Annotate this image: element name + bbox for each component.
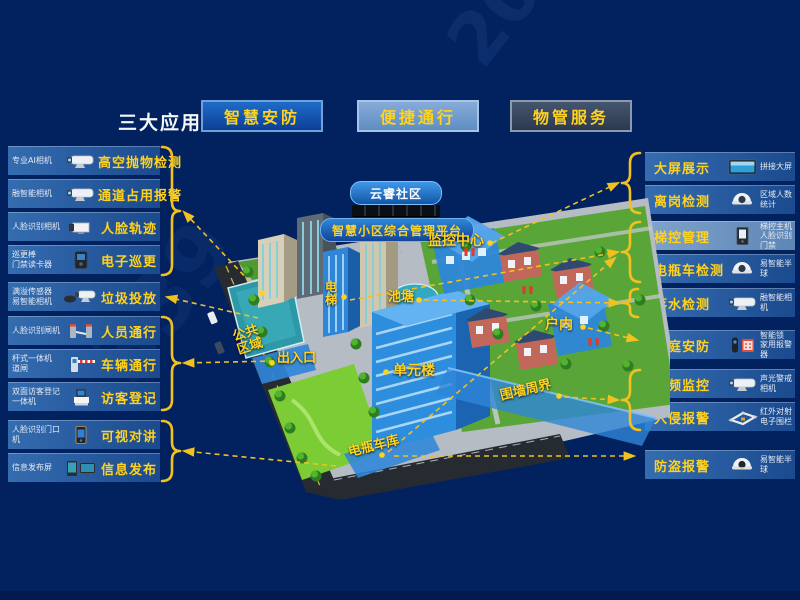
device-label: 专业AI相机 bbox=[8, 156, 62, 166]
feature-label: 访客登记 bbox=[98, 388, 160, 407]
device-label: 杆式一体机 道闸 bbox=[8, 354, 62, 373]
device-label: 智能锁 家用报警器 bbox=[760, 331, 795, 360]
feature-row-info-publishing: 信息发布屏 信息发布 bbox=[8, 453, 160, 482]
app-button-property[interactable]: 物管服务 bbox=[510, 100, 632, 132]
cloud-community-badge: 云睿社区 bbox=[350, 181, 442, 205]
bullet-camera-icon bbox=[724, 293, 760, 313]
barrier-gate-icon bbox=[62, 354, 98, 374]
feature-label: 车辆通行 bbox=[98, 355, 160, 374]
zone-label-entrance: 出入口 bbox=[277, 352, 316, 366]
app-button-security[interactable]: 智慧安防 bbox=[201, 100, 323, 132]
feature-row-channel-occupancy: 融智能相机 通道占用报警 bbox=[8, 179, 160, 208]
turnstile-icon bbox=[62, 321, 98, 341]
device-label: 满溢传感器 易智能相机 bbox=[8, 287, 62, 306]
feature-label: 电子巡更 bbox=[98, 251, 160, 270]
device-label: 人脸识别相机 bbox=[8, 222, 62, 232]
device-label: 声光警戒相机 bbox=[760, 374, 795, 393]
visitor-kiosk-icon bbox=[62, 387, 98, 407]
device-label: 易智能半球 bbox=[760, 259, 795, 278]
device-label: 红外对射 电子围栏 bbox=[760, 407, 795, 426]
page-title: 三大应用 bbox=[118, 108, 202, 135]
device-label: 信息发布屏 bbox=[8, 463, 62, 473]
info-screen-icon bbox=[62, 458, 98, 478]
feature-label: 可视对讲 bbox=[98, 426, 160, 445]
device-label: 拼接大屏 bbox=[760, 162, 795, 172]
smart-lock-siren-icon bbox=[724, 335, 760, 355]
watermark: 2020-09 bbox=[430, 0, 700, 82]
elevator-controller-icon bbox=[724, 226, 760, 246]
zone-label-monitoring-center: 监控中心 bbox=[428, 234, 484, 249]
bullet-camera-icon bbox=[724, 374, 760, 394]
dome-camera-icon bbox=[724, 259, 760, 279]
device-label: 区域人数统计 bbox=[760, 190, 795, 209]
device-label: 人脸识别门口机 bbox=[8, 425, 62, 444]
app-button-passage[interactable]: 便捷通行 bbox=[357, 100, 479, 132]
feature-row-face-track: 人脸识别相机 人脸轨迹 bbox=[8, 212, 160, 241]
feature-label: 高空抛物检测 bbox=[98, 152, 182, 171]
video-wall-icon bbox=[724, 157, 760, 177]
feature-row-vehicle-passage: 杆式一体机 道闸 车辆通行 bbox=[8, 349, 160, 378]
feature-row-video-intercom: 人脸识别门口机 可视对讲 bbox=[8, 420, 160, 449]
bullet-camera-icon bbox=[62, 151, 98, 171]
feature-row-electronic-patrol: 巡更棒 门禁读卡器 电子巡更 bbox=[8, 245, 160, 274]
feature-label: 大屏展示 bbox=[645, 158, 724, 177]
footer-strip bbox=[0, 591, 800, 600]
zone-label-unit-building: 单元楼 bbox=[393, 364, 435, 379]
bullet-camera-icon bbox=[62, 184, 98, 204]
device-label: 易智能半球 bbox=[760, 455, 795, 474]
feature-row-big-screen: 大屏展示 拼接大屏 bbox=[645, 152, 795, 181]
feature-label: 信息发布 bbox=[98, 459, 160, 478]
feature-row-high-altitude-throwing: 专业AI相机 高空抛物检测 bbox=[8, 146, 160, 175]
zone-label-pond: 池塘 bbox=[388, 291, 414, 305]
fence-icon bbox=[724, 407, 760, 427]
device-label: 双面访客登记 一体机 bbox=[8, 387, 62, 406]
door-intercom-icon bbox=[62, 425, 98, 445]
feature-label: 人员通行 bbox=[98, 322, 160, 341]
device-label: 梯控主机 人脸识别门禁 bbox=[760, 222, 795, 251]
feature-row-personnel-passage: 人脸识别闸机 人员通行 bbox=[8, 316, 160, 345]
feature-label: 人脸轨迹 bbox=[98, 218, 160, 237]
zone-label-indoor: 户内 bbox=[545, 318, 573, 333]
device-label: 人脸识别闸机 bbox=[8, 326, 62, 336]
zone-label-elevator: 电梯 bbox=[325, 281, 339, 307]
overflow-sensor-camera-icon bbox=[62, 287, 98, 307]
feature-row-visitor-registration: 双面访客登记 一体机 访客登记 bbox=[8, 382, 160, 411]
box-camera-icon bbox=[62, 217, 98, 237]
device-label: 融智能相机 bbox=[760, 293, 795, 312]
dome-camera-icon bbox=[724, 190, 760, 210]
feature-label: 垃圾投放 bbox=[98, 288, 160, 307]
feature-label: 通道占用报警 bbox=[98, 185, 182, 204]
dome-camera-icon bbox=[724, 455, 760, 475]
feature-row-garbage-disposal: 满溢传感器 易智能相机 垃圾投放 bbox=[8, 282, 160, 311]
device-label: 融智能相机 bbox=[8, 189, 62, 199]
server-rack-icon bbox=[352, 205, 440, 216]
card-reader-icon bbox=[62, 250, 98, 270]
device-label: 巡更棒 门禁读卡器 bbox=[8, 250, 62, 269]
